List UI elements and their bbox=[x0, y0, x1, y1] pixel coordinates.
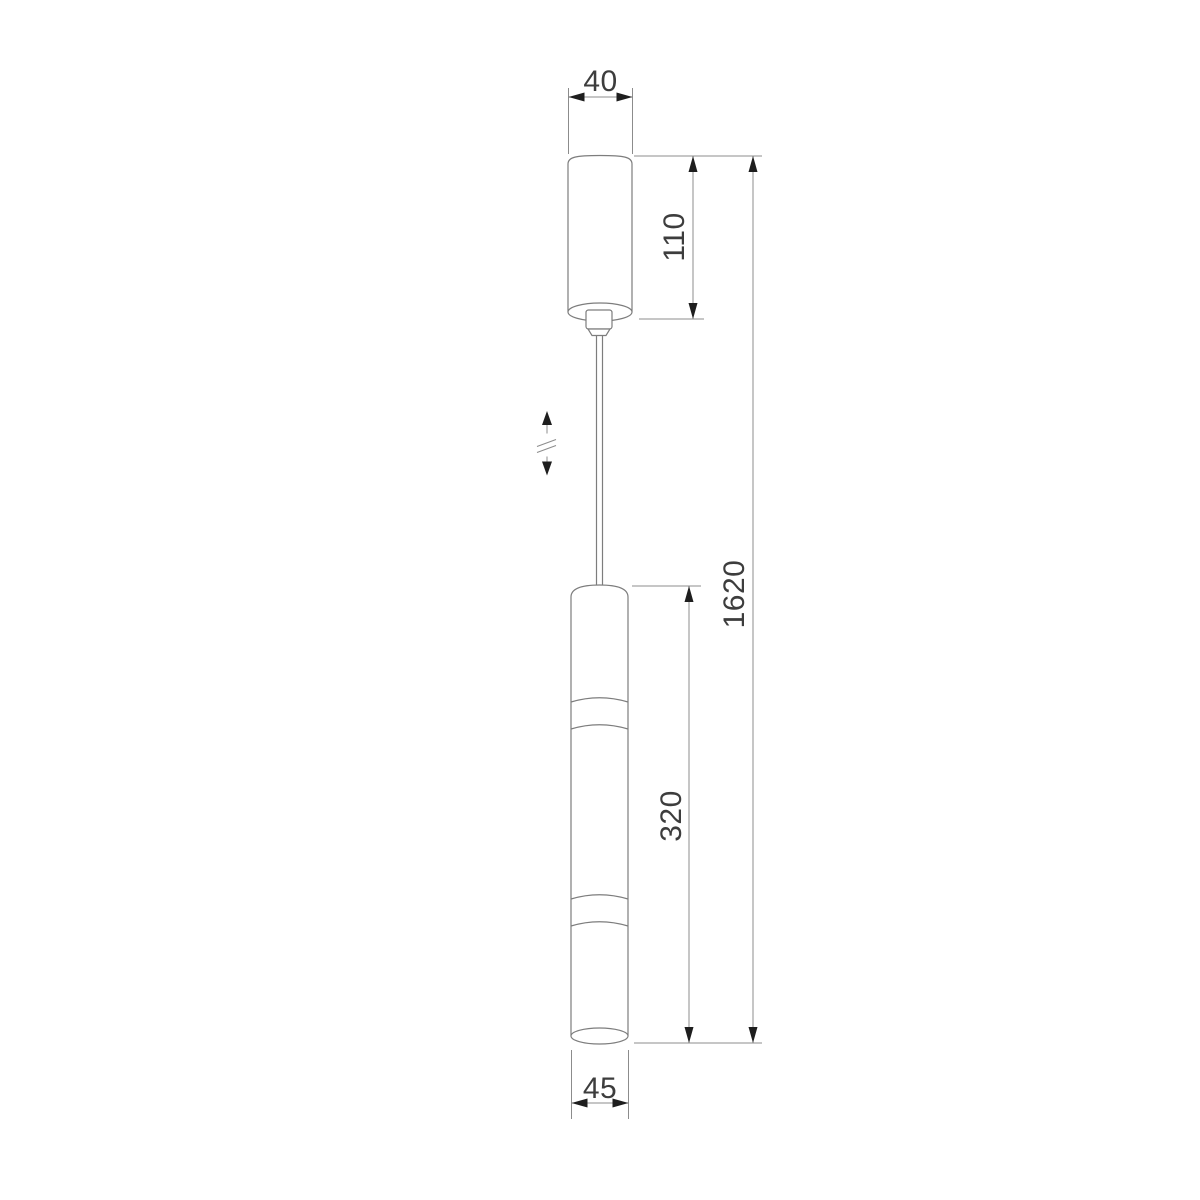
lamp-bottom-rim bbox=[571, 1028, 628, 1044]
left-arrowhead bbox=[569, 93, 585, 102]
dim-overall-height: 1620 bbox=[718, 156, 758, 1043]
canopy-width-label: 40 bbox=[583, 65, 617, 98]
suspension-cable bbox=[597, 336, 603, 587]
up-arrow-icon bbox=[542, 411, 552, 425]
body-diameter-label: 45 bbox=[583, 1072, 617, 1105]
break-mark-lower bbox=[537, 446, 556, 453]
technical-drawing-page: 40 110 1620 320 bbox=[0, 0, 1200, 1200]
dim-canopy-height: 110 bbox=[639, 156, 704, 319]
top-arrowhead bbox=[689, 156, 698, 172]
bottom-arrowhead bbox=[749, 1027, 758, 1043]
lamp-body-outline bbox=[571, 585, 628, 1036]
canopy-body bbox=[568, 156, 632, 313]
canopy-height-label: 110 bbox=[658, 212, 691, 261]
cord-grip bbox=[586, 310, 612, 336]
dim-canopy-width: 40 bbox=[569, 65, 633, 154]
technical-drawing-canvas: 40 110 1620 320 bbox=[0, 0, 1200, 1200]
bottom-arrowhead bbox=[689, 303, 698, 319]
right-arrowhead bbox=[617, 93, 633, 102]
overall-height-label: 1620 bbox=[718, 560, 751, 629]
dim-body-height: 320 bbox=[632, 586, 701, 1043]
top-arrowhead bbox=[685, 586, 694, 602]
top-arrowhead bbox=[749, 156, 758, 172]
dim-body-diameter: 45 bbox=[572, 1050, 629, 1119]
height-adjustment-symbol bbox=[537, 411, 556, 476]
cord-grip-flange bbox=[588, 329, 610, 336]
lamp-body bbox=[571, 585, 628, 1044]
break-mark-upper bbox=[537, 440, 556, 447]
cord-grip-body bbox=[586, 310, 612, 329]
body-height-label: 320 bbox=[655, 790, 688, 842]
down-arrow-icon bbox=[542, 462, 552, 476]
bottom-arrowhead bbox=[685, 1027, 694, 1043]
ceiling-canopy bbox=[568, 156, 632, 322]
